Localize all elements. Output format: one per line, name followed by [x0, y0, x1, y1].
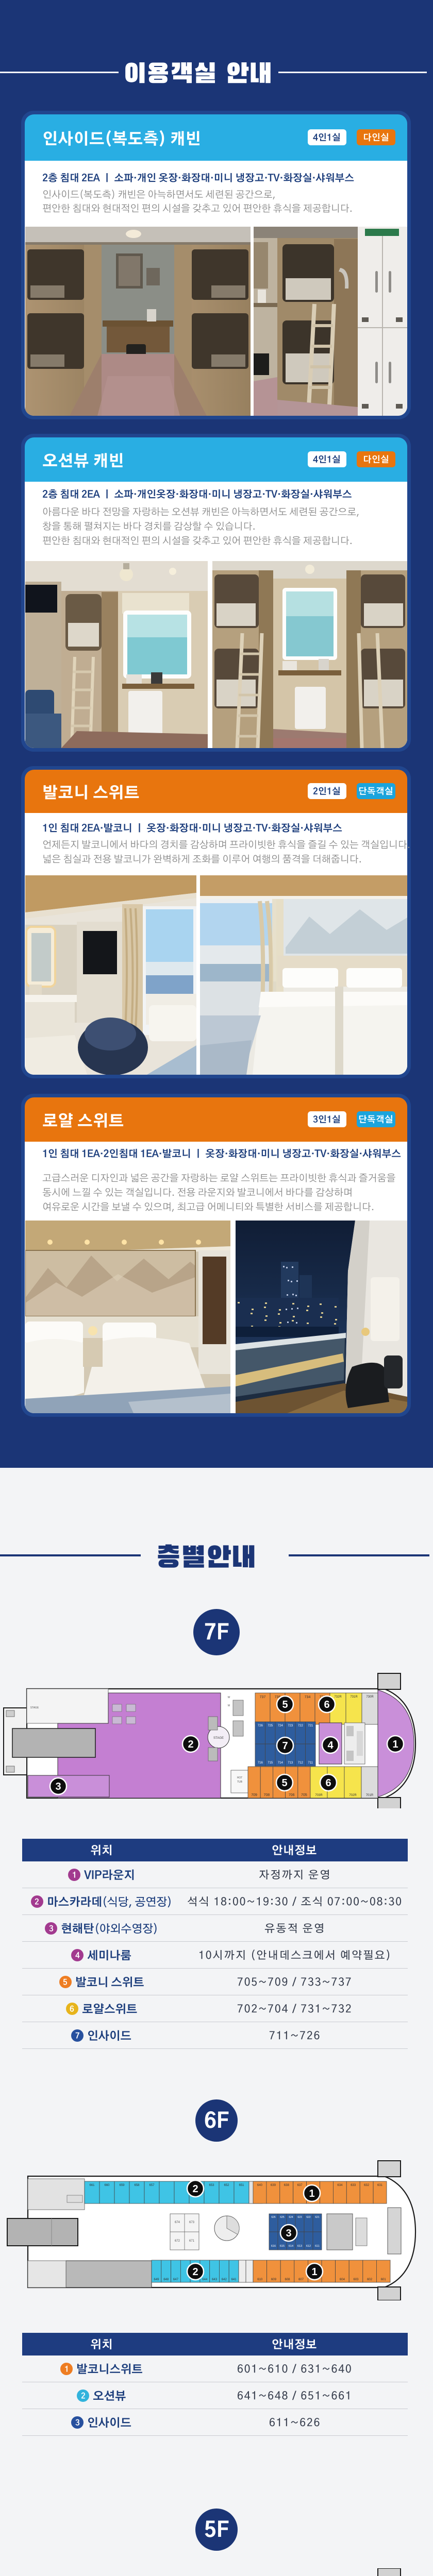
svg-text:634: 634 — [337, 2184, 343, 2187]
svg-text:671: 671 — [189, 2240, 195, 2243]
svg-text:601: 601 — [381, 2278, 387, 2281]
svg-text:705: 705 — [301, 1793, 307, 1797]
svg-text:732R: 732R — [334, 1696, 342, 1699]
svg-text:653: 653 — [209, 2184, 214, 2187]
svg-text:614: 614 — [289, 2245, 293, 2248]
svg-text:651: 651 — [239, 2184, 244, 2187]
svg-text:703R: 703R — [315, 1794, 323, 1797]
svg-text:612: 612 — [306, 2245, 311, 2248]
svg-text:660: 660 — [104, 2184, 110, 2187]
svg-text:725: 725 — [268, 1724, 273, 1727]
svg-text:615: 615 — [280, 2245, 285, 2248]
svg-text:611: 611 — [315, 2245, 320, 2248]
svg-text:712: 712 — [298, 1761, 304, 1765]
svg-text:623: 623 — [297, 2216, 302, 2219]
svg-text:604: 604 — [340, 2278, 345, 2281]
svg-text:644: 644 — [202, 2278, 208, 2281]
svg-text:658: 658 — [134, 2184, 140, 2187]
svg-text:M: M — [228, 1704, 230, 1707]
svg-text:631: 631 — [377, 2184, 383, 2187]
svg-text:652: 652 — [224, 2184, 229, 2187]
svg-text:643: 643 — [212, 2278, 218, 2281]
svg-text:723: 723 — [288, 1724, 293, 1727]
svg-text:701R: 701R — [366, 1794, 374, 1797]
svg-text:708: 708 — [263, 1793, 270, 1797]
svg-text:616: 616 — [271, 2245, 276, 2248]
svg-text:659: 659 — [119, 2184, 125, 2187]
svg-text:638: 638 — [284, 2184, 290, 2187]
svg-text:610: 610 — [257, 2278, 263, 2281]
svg-text:633: 633 — [351, 2184, 356, 2187]
svg-text:STAGE: STAGE — [213, 1737, 224, 1740]
svg-text:734: 734 — [305, 1696, 311, 1699]
svg-text:661: 661 — [89, 2184, 95, 2187]
svg-text:2: 2 — [192, 2183, 198, 2195]
svg-text:602: 602 — [367, 2278, 373, 2281]
svg-text:726: 726 — [258, 1724, 263, 1727]
svg-text:648: 648 — [163, 2278, 169, 2281]
svg-text:2: 2 — [188, 1739, 193, 1750]
svg-text:674: 674 — [175, 2221, 180, 2224]
svg-text:730R: 730R — [366, 1696, 374, 1699]
svg-text:1: 1 — [311, 2266, 317, 2278]
svg-text:711: 711 — [308, 1761, 313, 1765]
svg-text:715: 715 — [268, 1761, 273, 1765]
svg-text:722: 722 — [298, 1724, 304, 1727]
svg-text:731R: 731R — [350, 1696, 358, 1699]
svg-text:6: 6 — [325, 1777, 331, 1789]
svg-text:HOT: HOT — [237, 1776, 243, 1780]
svg-text:649: 649 — [154, 2278, 159, 2281]
svg-text:702R: 702R — [349, 1794, 357, 1797]
svg-text:721: 721 — [308, 1724, 313, 1727]
svg-text:657: 657 — [149, 2184, 155, 2187]
svg-text:608: 608 — [285, 2278, 290, 2281]
svg-text:673: 673 — [189, 2221, 195, 2224]
svg-text:1: 1 — [392, 1739, 398, 1750]
svg-text:5: 5 — [282, 1699, 288, 1710]
svg-text:639: 639 — [271, 2184, 276, 2187]
svg-text:3: 3 — [286, 2228, 291, 2239]
svg-text:TUB: TUB — [237, 1781, 243, 1784]
svg-text:709: 709 — [251, 1793, 257, 1797]
svg-text:672: 672 — [175, 2240, 180, 2243]
svg-text:632: 632 — [364, 2184, 370, 2187]
svg-text:706: 706 — [289, 1793, 295, 1797]
svg-text:626: 626 — [271, 2216, 276, 2219]
svg-text:716: 716 — [258, 1761, 263, 1765]
svg-text:625: 625 — [280, 2216, 285, 2219]
svg-text:622: 622 — [306, 2216, 311, 2219]
svg-text:603: 603 — [353, 2278, 359, 2281]
svg-text:714: 714 — [278, 1761, 284, 1765]
svg-text:637: 637 — [297, 2184, 303, 2187]
svg-text:613: 613 — [297, 2245, 302, 2248]
svg-text:6: 6 — [324, 1699, 329, 1710]
svg-text:5: 5 — [281, 1777, 287, 1789]
svg-text:647: 647 — [173, 2278, 179, 2281]
svg-text:724: 724 — [278, 1724, 284, 1727]
svg-text:640: 640 — [257, 2184, 263, 2187]
svg-text:607: 607 — [298, 2278, 304, 2281]
svg-text:737: 737 — [260, 1696, 266, 1699]
svg-text:1: 1 — [309, 2188, 314, 2199]
svg-text:642: 642 — [222, 2278, 227, 2281]
svg-text:STAGE: STAGE — [30, 1706, 39, 1709]
svg-text:609: 609 — [271, 2278, 277, 2281]
svg-text:621: 621 — [315, 2216, 320, 2219]
svg-text:7: 7 — [282, 1740, 288, 1752]
svg-text:4: 4 — [327, 1740, 334, 1751]
svg-text:713: 713 — [288, 1761, 293, 1765]
svg-text:2: 2 — [192, 2266, 198, 2278]
svg-text:W: W — [228, 1696, 230, 1699]
svg-text:641: 641 — [231, 2278, 237, 2281]
svg-text:3: 3 — [55, 1781, 61, 1792]
svg-text:624: 624 — [289, 2216, 293, 2219]
